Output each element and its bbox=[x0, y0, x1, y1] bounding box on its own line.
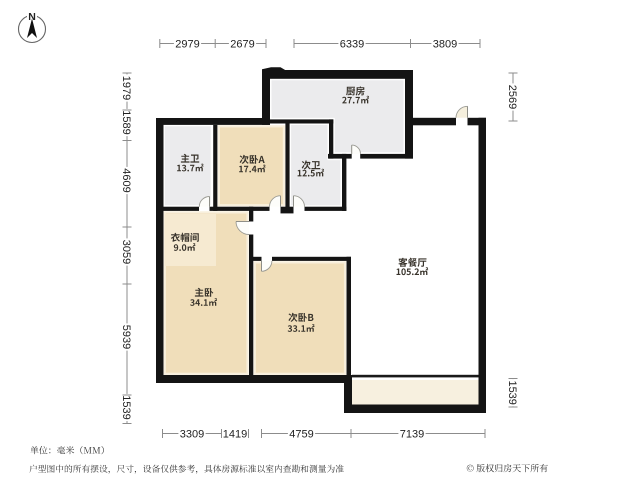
svg-text:7139: 7139 bbox=[400, 428, 424, 440]
svg-text:2679: 2679 bbox=[230, 38, 254, 50]
svg-text:1419: 1419 bbox=[223, 428, 247, 440]
svg-text:2569: 2569 bbox=[506, 85, 518, 109]
svg-text:3059: 3059 bbox=[120, 240, 132, 264]
svg-text:1539: 1539 bbox=[120, 395, 132, 419]
svg-text:1979: 1979 bbox=[120, 76, 132, 100]
svg-text:2979: 2979 bbox=[175, 38, 199, 50]
svg-text:4609: 4609 bbox=[120, 168, 132, 192]
svg-text:3809: 3809 bbox=[433, 38, 457, 50]
svg-text:1539: 1539 bbox=[506, 380, 518, 404]
svg-text:5939: 5939 bbox=[120, 325, 132, 349]
svg-text:6339: 6339 bbox=[340, 38, 364, 50]
svg-text:4759: 4759 bbox=[289, 428, 313, 440]
svg-text:3309: 3309 bbox=[180, 428, 204, 440]
svg-text:1589: 1589 bbox=[120, 110, 132, 134]
